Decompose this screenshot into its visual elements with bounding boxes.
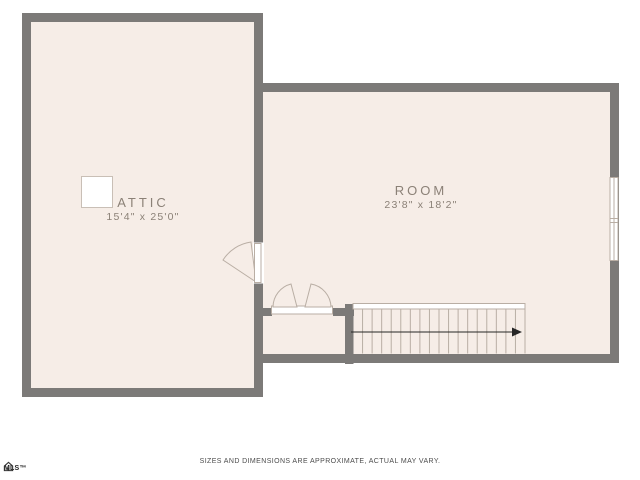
attic-dimensions: 15'4" x 25'0" (83, 211, 203, 223)
stairwell-wall (345, 304, 354, 364)
stairs-rail (353, 304, 525, 310)
room-dimensions: 23'8" x 18'2" (361, 199, 481, 211)
landing-wall-left-stub (260, 308, 272, 316)
disclaimer-text: SIZES AND DIMENSIONS ARE APPROXIMATE, AC… (0, 458, 640, 465)
mls-logo: MLS™ (3, 461, 27, 475)
room-label: ROOM (361, 183, 481, 198)
attic-door-panel (255, 244, 262, 283)
room-walls (259, 88, 615, 359)
attic-label: ATTIC (83, 195, 203, 210)
floor-plan: ATTIC 15'4" x 25'0" ROOM 23'8" x 18'2" S… (0, 0, 640, 480)
floor-plan-drawing (0, 0, 640, 480)
